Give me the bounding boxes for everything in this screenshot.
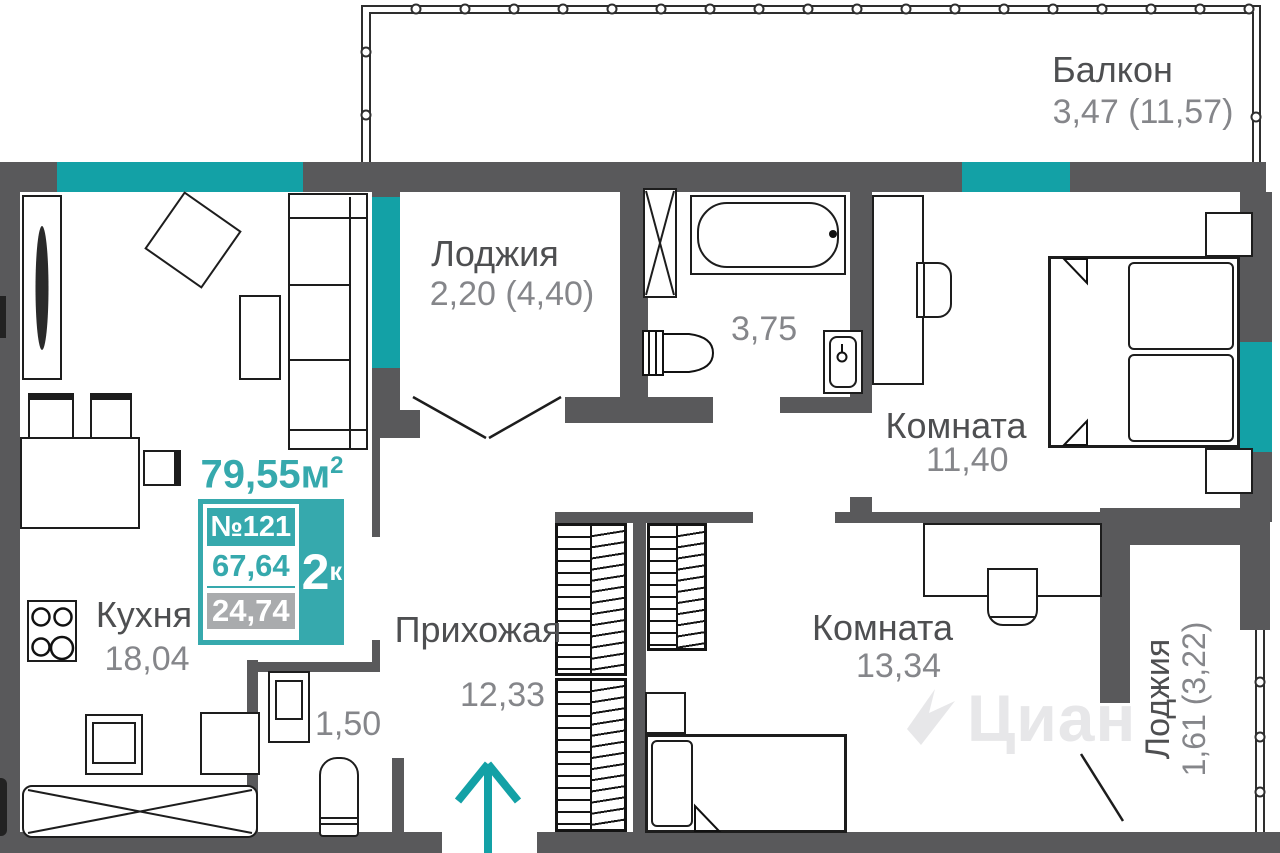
wall-storage-east [392, 758, 404, 832]
bathtub [690, 195, 846, 275]
wall-bottom-right [537, 832, 1280, 853]
loggia-right-railing-posts [1256, 678, 1265, 797]
wall-loggia2-west [1100, 523, 1130, 703]
bed-single-pillow [651, 740, 693, 827]
rooms-count-suffix: к [329, 560, 342, 585]
desk-chair-back-line [923, 264, 925, 316]
boiler [319, 757, 359, 837]
boiler-band [321, 823, 357, 825]
room-label-balcony: Балкон [1040, 50, 1185, 90]
bed-double-pillow-1 [1128, 262, 1234, 350]
window-kitchen [57, 162, 303, 192]
loggia-right-railing [1256, 630, 1264, 832]
wall-right-lower [1240, 508, 1270, 630]
cian-bird-icon [905, 683, 957, 753]
nightstand-2 [1205, 448, 1253, 494]
armchair [144, 191, 241, 288]
apartment-number-badge: №121 [207, 508, 295, 546]
room-area-room2: 13,34 [856, 648, 938, 685]
total-area-label: 79,55м2 [196, 452, 348, 497]
cabinet-tall [22, 195, 62, 380]
door-swing-kitchen-left [413, 397, 486, 438]
wardrobe-section [676, 526, 704, 648]
wardrobe-section [558, 526, 590, 673]
bath-cabinet [643, 188, 677, 298]
window-balcony-door [962, 162, 1070, 192]
bath-washbasin-inner [829, 336, 857, 388]
room-area-loggia-top: 2,20 (4,40) [412, 276, 612, 313]
dining-chair-2 [90, 393, 132, 439]
dining-chair-3 [143, 450, 181, 486]
room-label-room2: Комната [812, 608, 944, 648]
nightstand-3 [645, 692, 686, 734]
wardrobe-section [590, 681, 624, 829]
wall-room2-north-c [835, 512, 1102, 523]
living-area-value: 67,64 [207, 546, 295, 588]
left-wall-window-slit-2 [0, 778, 7, 836]
total-area-sup: 2 [330, 452, 343, 479]
left-wall-window-slit-1 [0, 296, 6, 338]
wall-loggia2-top [1100, 508, 1250, 545]
entrance-arrow-icon [458, 764, 518, 853]
boiler-band2 [321, 817, 357, 819]
wall-kitchen-door-stub [372, 410, 420, 438]
kitchen-sink-unit [85, 714, 143, 775]
sofa [288, 193, 368, 450]
room-label-bedroom: Комната [880, 406, 1032, 446]
kitchen-area-badge: 24,74 [207, 593, 295, 629]
bath-washbasin [823, 330, 863, 394]
wardrobe-1-top [555, 523, 627, 676]
room-area-balcony: 3,47 (11,57) [1043, 94, 1243, 131]
wardrobe-section [650, 526, 676, 648]
kitchen-counter [22, 785, 258, 838]
room-label-kitchen: Кухня [92, 595, 196, 635]
room-area-bathroom: 3,75 [731, 311, 797, 348]
wardrobe-section [590, 526, 624, 673]
total-area-value: 79,55 [200, 452, 300, 496]
room-label-loggia-top: Лоджия [420, 234, 570, 274]
bathtub-inner [697, 202, 839, 268]
room-label-hallway: Прихожая [388, 610, 568, 650]
rooms-count-badge: 2к [302, 501, 342, 643]
rooms-count-value: 2 [302, 547, 330, 597]
loggia-right-area: 1,61 (3,22) [1177, 589, 1212, 809]
bed-double-pillow-2 [1128, 354, 1234, 442]
kitchen-sink-basin [92, 722, 136, 764]
coffee-table [239, 295, 281, 380]
wall-bath-south-left [565, 397, 713, 423]
room-area-hallway: 12,33 [460, 677, 542, 714]
toilet [643, 331, 713, 375]
floor-plan: Циан [0, 0, 1280, 853]
room-area-storage: 1,50 [315, 706, 379, 743]
desk-chair-room2 [987, 568, 1038, 626]
dining-table [20, 437, 140, 529]
stove [27, 600, 77, 662]
wardrobe-section [558, 681, 590, 829]
storage-basin [268, 671, 310, 743]
window-bedroom [1240, 342, 1272, 452]
kitchen-cabinet [200, 712, 260, 775]
room-label-loggia-right: Лоджия 1,61 (3,22) [1141, 589, 1219, 809]
room-area-kitchen: 18,04 [104, 641, 190, 678]
loggia-right-label: Лоджия [1141, 589, 1177, 809]
wardrobe-1-bottom [555, 678, 627, 832]
room-area-bedroom: 11,40 [926, 442, 1006, 479]
total-area-unit: м [301, 452, 331, 496]
info-card: №121 67,64 24,74 2к [198, 499, 344, 645]
info-card-left: №121 67,64 24,74 [203, 504, 299, 640]
door-swing-kitchen-right [489, 397, 561, 438]
wall-room2-north-a [555, 512, 645, 523]
desk-chair-bedroom [916, 262, 952, 318]
wall-kitchen-east-upper [372, 438, 380, 537]
dining-chair-1 [28, 393, 74, 439]
wall-left [0, 162, 20, 853]
window-kitchen-loggia [372, 197, 400, 368]
wall-room2-north-b [645, 512, 753, 523]
nightstand-1 [1205, 212, 1253, 257]
storage-basin-inner [275, 680, 303, 720]
wall-kitchen-east-mid [372, 640, 380, 672]
desk-chair-back-line [989, 616, 1036, 618]
wardrobe-2 [647, 523, 707, 651]
